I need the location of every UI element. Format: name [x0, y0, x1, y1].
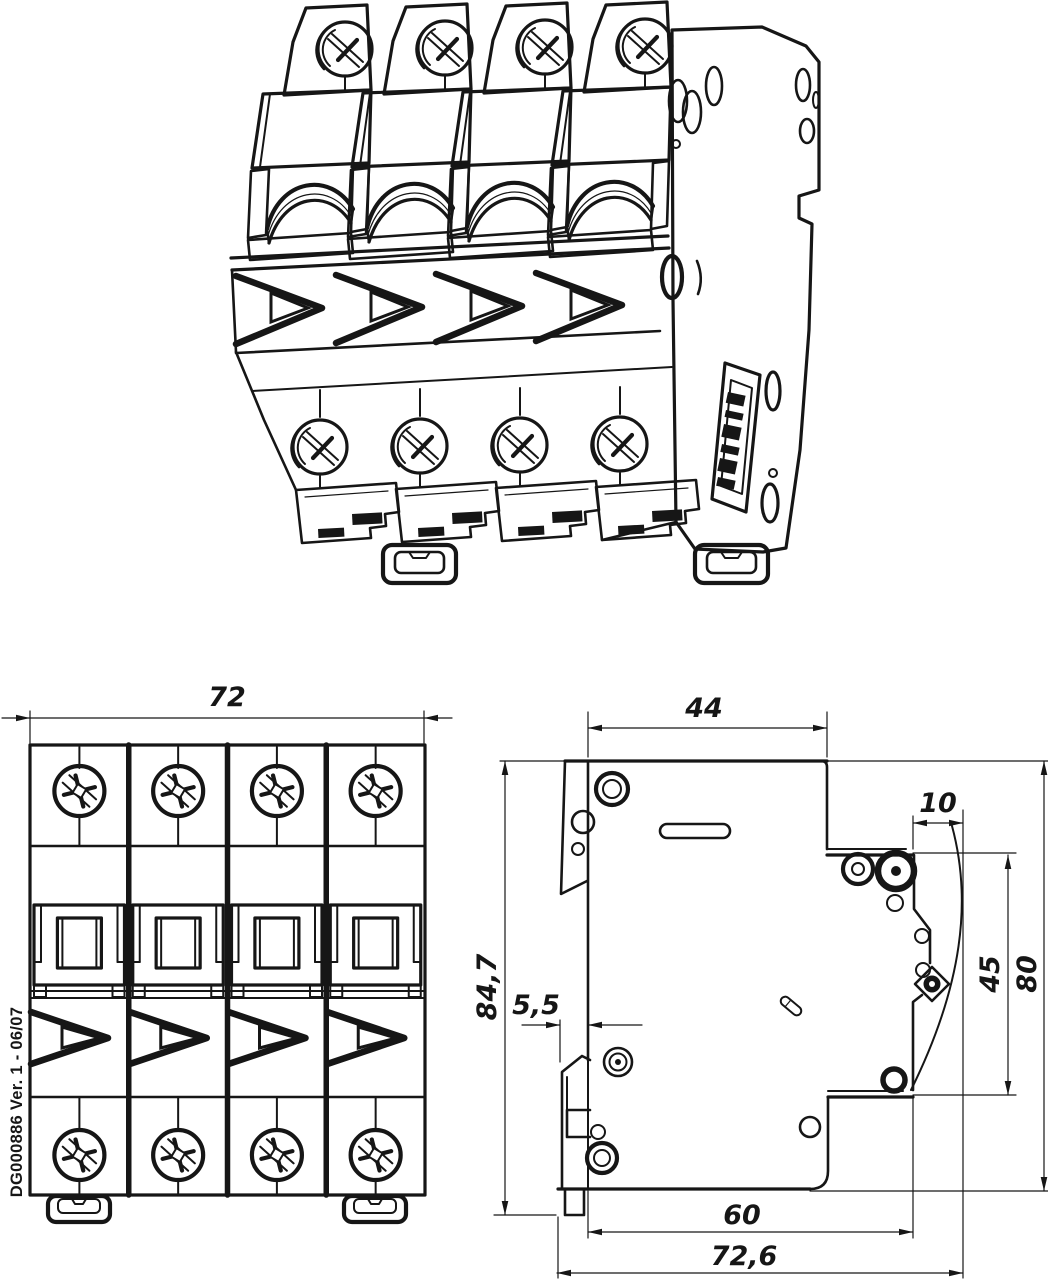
- hole: [887, 895, 903, 911]
- recess-depth-dim-label: 10: [919, 788, 957, 819]
- din-clip: [48, 1196, 110, 1222]
- front-view: 72 DG000886 Ver. 1 - 06/07: [2, 682, 452, 1222]
- din-clip: [344, 1196, 406, 1222]
- din-depth-dim-label: 5,5: [512, 990, 560, 1021]
- doc-number-label: DG000886 Ver. 1 - 06/07: [8, 1007, 26, 1197]
- rating-label: [712, 363, 760, 512]
- lower-depth-dim-label: 60: [723, 1200, 761, 1231]
- hole: [591, 1125, 605, 1139]
- hole: [572, 843, 584, 855]
- side-hole: [762, 484, 778, 522]
- din-clip: [383, 545, 456, 583]
- rivet: [596, 773, 628, 805]
- hole: [915, 929, 929, 943]
- pin: [779, 995, 803, 1017]
- front-width-dim-label: 72: [208, 682, 246, 713]
- circuit-breaker-drawing: 72 DG000886 Ver. 1 - 06/07: [0, 0, 1048, 1280]
- dimension-5-5: 5,5: [512, 990, 642, 1028]
- side-hole: [800, 119, 814, 143]
- side-body: [558, 761, 962, 1215]
- rivet: [587, 1143, 617, 1173]
- side-hole: [813, 92, 819, 108]
- hole: [572, 811, 594, 833]
- front-height-dim-label: 80: [1012, 955, 1043, 993]
- side-panel: [662, 27, 819, 552]
- side-hole: [766, 372, 780, 410]
- side-depth-top-dim-label: 44: [684, 693, 723, 724]
- dimension-72-6: 72,6: [557, 1241, 963, 1276]
- dimension-44: 44: [588, 693, 827, 731]
- shelf-roll: [883, 1069, 905, 1091]
- technical-drawing-page: 72 DG000886 Ver. 1 - 06/07: [0, 0, 1048, 1280]
- side-hole: [796, 69, 810, 101]
- dimension-80: 80: [1012, 761, 1047, 1191]
- perspective-view: [231, 2, 819, 583]
- upper-terminal-screws: [843, 853, 914, 889]
- dimension-84-7: 84,7: [472, 761, 508, 1215]
- dimension-45: 45: [975, 855, 1011, 1095]
- dimension-72: 72: [2, 682, 452, 743]
- side-hole: [706, 67, 722, 105]
- hole: [800, 1117, 820, 1137]
- rivet: [604, 1048, 632, 1076]
- dimension-10: 10: [913, 788, 963, 826]
- slot: [660, 824, 730, 838]
- side-hole: [769, 469, 777, 477]
- terminal-height-dim-label: 45: [975, 955, 1006, 994]
- dimension-60: 60: [588, 1200, 913, 1235]
- side-view: 44 10 84,7 5,5 45: [472, 693, 1048, 1278]
- total-height-dim-label: 84,7: [472, 953, 503, 1020]
- total-depth-dim-label: 72,6: [711, 1241, 778, 1272]
